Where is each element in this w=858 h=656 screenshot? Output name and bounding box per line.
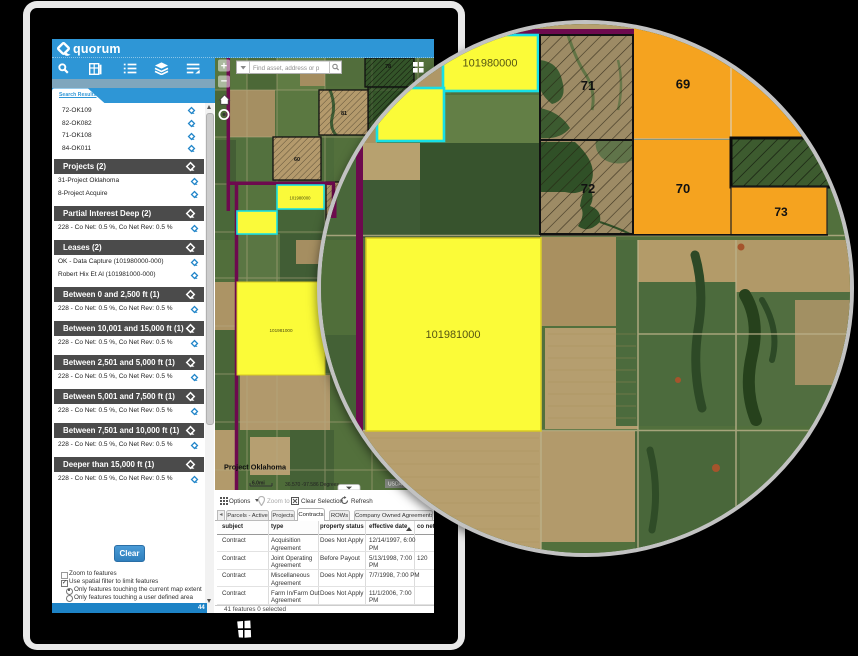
svg-text:78: 78 — [385, 64, 391, 70]
svg-text:71: 71 — [581, 78, 595, 93]
svg-text:81: 81 — [341, 111, 347, 117]
svg-text:72: 72 — [581, 181, 595, 196]
svg-text:101980000: 101980000 — [290, 196, 312, 201]
svg-text:70: 70 — [676, 181, 690, 196]
svg-text:101981000: 101981000 — [270, 328, 293, 333]
svg-text:Find asset, address or p: Find asset, address or p — [253, 65, 320, 72]
svg-text:−: − — [221, 76, 227, 88]
svg-text:101980000: 101980000 — [462, 58, 517, 70]
svg-text:36.570 -97.586 Degrees: 36.570 -97.586 Degrees — [285, 482, 339, 488]
svg-text:+: + — [221, 61, 227, 73]
svg-text:73: 73 — [774, 205, 788, 219]
svg-text:6.0mi: 6.0mi — [252, 481, 265, 487]
svg-text:Project Oklahoma: Project Oklahoma — [224, 463, 287, 472]
svg-text:101981000: 101981000 — [425, 329, 480, 341]
svg-text:60: 60 — [294, 157, 300, 163]
svg-text:69: 69 — [676, 77, 690, 92]
